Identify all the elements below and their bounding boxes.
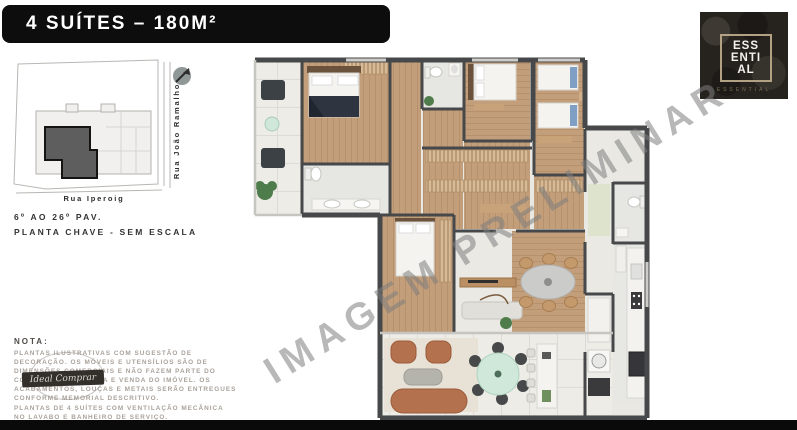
street-label-right: Rua João Ramalho (172, 83, 181, 179)
note-heading: NOTA: (14, 337, 49, 346)
corridor-floor (391, 61, 421, 229)
north-arrow-icon (173, 67, 191, 85)
brand-line-1: ESS (733, 40, 759, 52)
street-label-bottom: Rua Iperoig (63, 194, 124, 203)
brand-line-2: ENTI (731, 52, 761, 64)
key-plan: Rua João Ramalho Rua Iperoig (6, 56, 218, 208)
footer-bar (0, 420, 797, 430)
page-title: 4 SUÍTES – 180M² (26, 13, 217, 35)
dining-area (520, 254, 578, 312)
brand-line-3: AL (737, 64, 754, 76)
stamp-logo: Ideal Comprar (22, 370, 104, 388)
note-line: PLANTAS DE 4 SUÍTES COM VENTILAÇÃO MECÂN… (14, 404, 224, 413)
floors-label: 6º AO 26º PAV. (14, 212, 103, 222)
closet-corridor-floor (423, 110, 463, 229)
brand-frame: ESS ENTI AL (720, 34, 772, 82)
marketing-floorplan-page: 4 SUÍTES – 180M² ESS ENTI AL ESSENTIAL (0, 0, 797, 430)
stamp-text: Ideal Comprar (30, 372, 97, 384)
title-bar: 4 SUÍTES – 180M² (2, 5, 390, 43)
scale-label: PLANTA CHAVE - SEM ESCALA (14, 227, 197, 237)
